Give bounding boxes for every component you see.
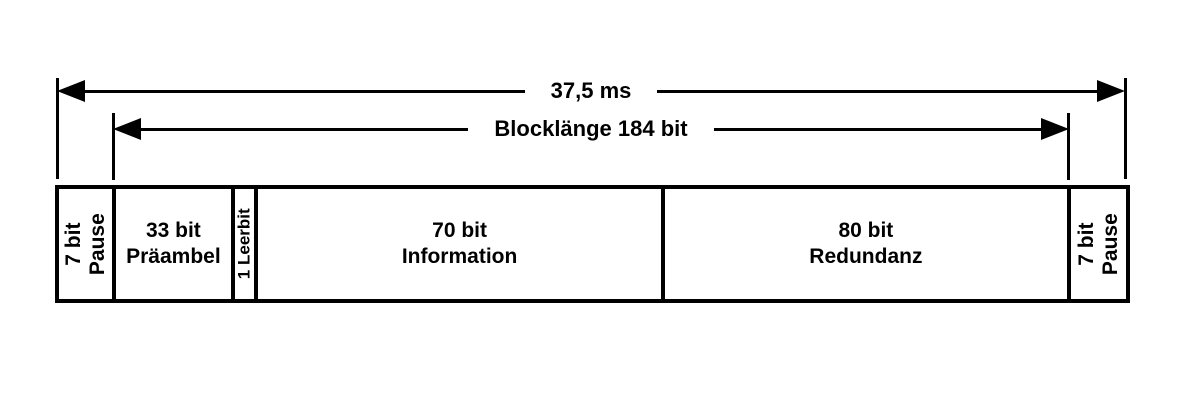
- boundary-tick-outer-right: [1124, 78, 1127, 179]
- arrowhead-right-icon: [1041, 118, 1069, 140]
- segment-empty-bit: 1 Leerbit: [235, 189, 259, 299]
- dimension-line: [714, 128, 1041, 131]
- boundary-tick-outer-left: [56, 78, 59, 179]
- segment-information: 70 bit Information: [258, 189, 664, 299]
- segment-label: 7 bit Pause: [61, 213, 109, 275]
- arrowhead-left-icon: [113, 118, 141, 140]
- dimension-total-duration: 37,5 ms: [57, 79, 1125, 103]
- segment-redundancy: 80 bit Redundanz: [665, 189, 1071, 299]
- segment-preamble: 33 bit Präambel: [116, 189, 235, 299]
- timing-diagram: 37,5 ms Blocklänge 184 bit 7 bit Pause 3…: [0, 0, 1200, 400]
- dimension-line: [657, 90, 1097, 93]
- segment-label: 1 Leerbit: [235, 209, 255, 280]
- segment-label: 70 bit Information: [402, 218, 518, 271]
- segment-label: 7 bit Pause: [1074, 213, 1122, 275]
- segment-label: 80 bit Redundanz: [809, 218, 922, 271]
- frame-bar: 7 bit Pause 33 bit Präambel 1 Leerbit 70…: [55, 185, 1130, 303]
- segment-pause-right: 7 bit Pause: [1071, 189, 1126, 299]
- segment-label: 33 bit Präambel: [126, 218, 221, 271]
- segment-pause-left: 7 bit Pause: [59, 189, 116, 299]
- boundary-tick-inner-right: [1067, 113, 1070, 180]
- dimension-line: [141, 128, 468, 131]
- dimension-line: [85, 90, 525, 93]
- dimension-label-total-duration: 37,5 ms: [525, 79, 658, 103]
- dimension-label-block-length: Blocklänge 184 bit: [468, 117, 713, 141]
- dimension-block-length: Blocklänge 184 bit: [113, 117, 1069, 141]
- arrowhead-left-icon: [57, 80, 85, 102]
- arrowhead-right-icon: [1097, 80, 1125, 102]
- boundary-tick-inner-left: [112, 113, 115, 180]
